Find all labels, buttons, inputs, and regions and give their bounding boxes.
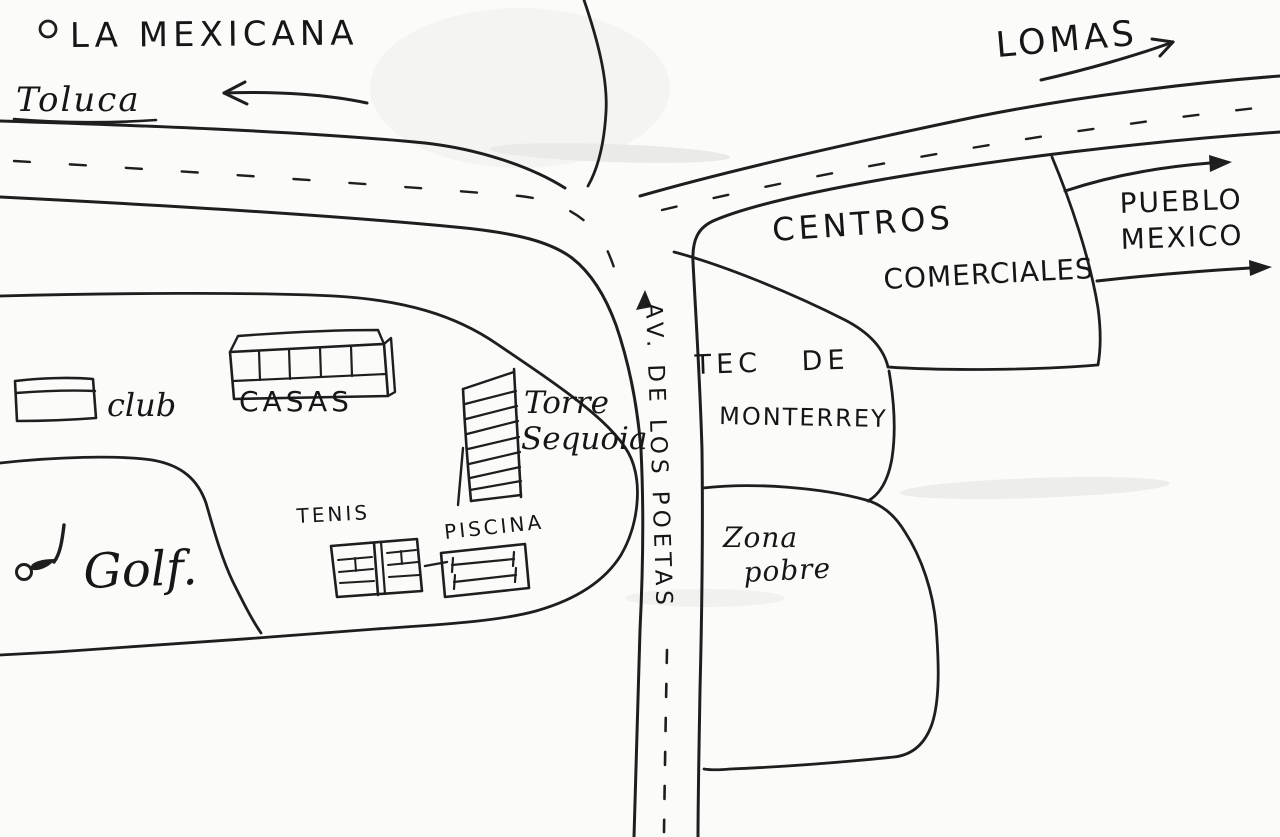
label-toluca: Toluca: [16, 80, 141, 120]
label-torre-sequoia-line2: Sequoia: [521, 421, 647, 457]
scan-smudge: [625, 589, 785, 607]
label-pueblo-mexico-line1: PUEBLO: [1119, 183, 1243, 220]
label-zona-pobre-line2: pobre: [743, 551, 832, 589]
sketch-map-page: LA MEXICANA Toluca LOMAS PUEBLO MEXICO C…: [0, 0, 1280, 837]
label-la-mexicana: LA MEXICANA: [70, 13, 359, 56]
label-zona-pobre-line1: Zona: [722, 521, 798, 554]
label-pueblo-mexico-line2: MEXICO: [1120, 219, 1244, 256]
label-tec-de-monterrey-line1: TEC DE: [693, 345, 850, 381]
paper-shading: [0, 0, 1280, 837]
label-tenis: TENIS: [295, 500, 371, 528]
label-casas: CASAS: [239, 385, 353, 418]
label-club: club: [107, 386, 176, 424]
map-canvas: LA MEXICANA Toluca LOMAS PUEBLO MEXICO C…: [0, 0, 1280, 837]
label-golf: Golf.: [82, 540, 198, 600]
label-tec-de-monterrey-line2: MONTERREY: [719, 402, 888, 433]
label-torre-sequoia-line1: Torre: [524, 385, 609, 421]
